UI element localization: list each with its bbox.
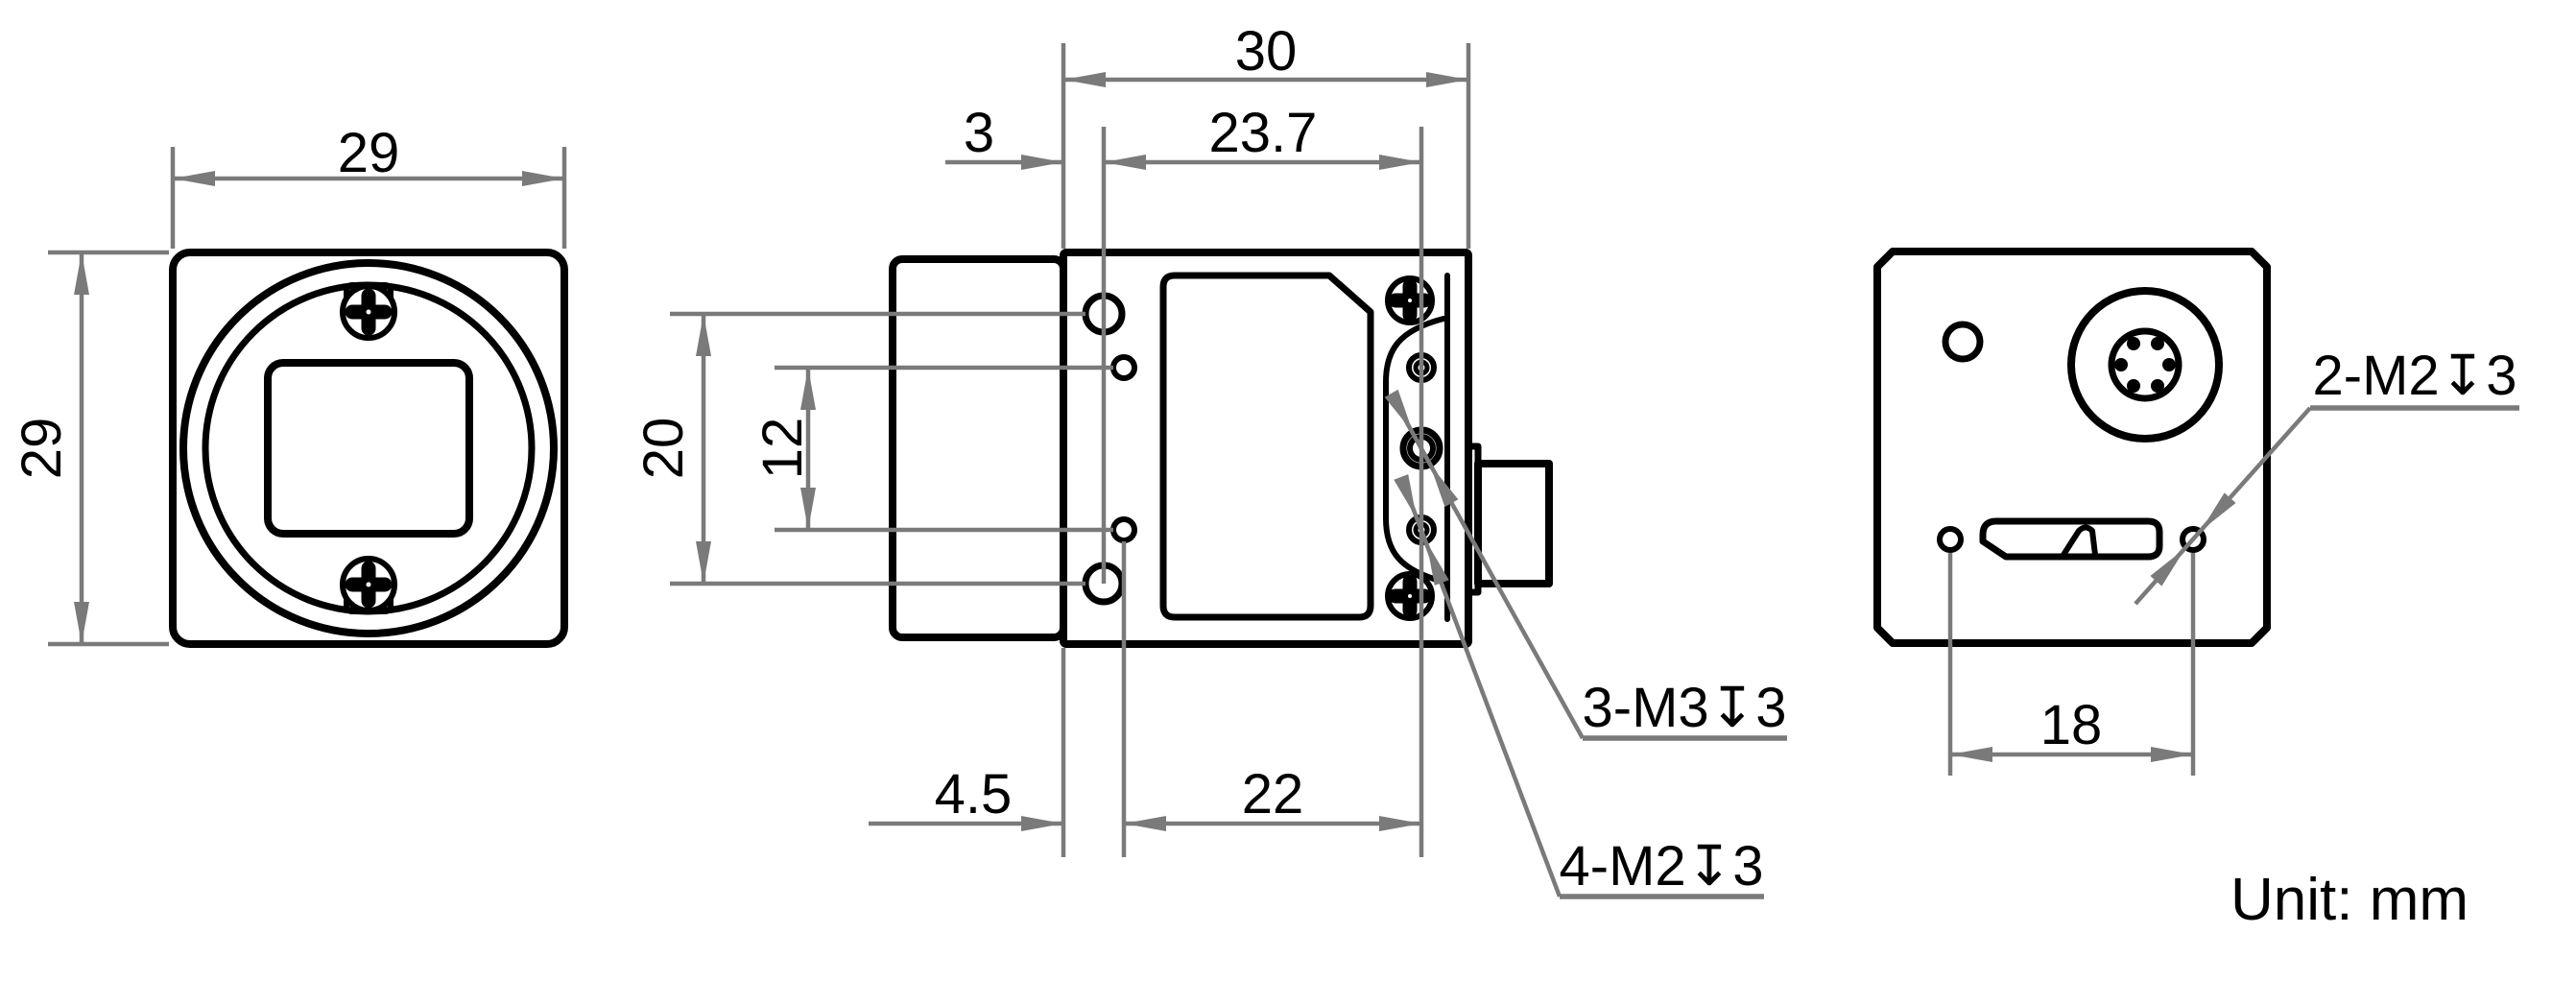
connector-pin (2114, 358, 2128, 371)
arrowhead (800, 368, 816, 410)
drawing-canvas: 29 29 (0, 0, 2576, 981)
phillips-screw-icon-top (343, 286, 394, 338)
dim-text-hole-pitch-inner: 12 (751, 418, 814, 480)
arrowhead (173, 171, 215, 186)
arrowhead (1063, 72, 1106, 87)
arrowhead (696, 541, 711, 584)
arrowhead (2151, 747, 2193, 762)
dim-text-hole-pitch-outer: 20 (632, 418, 695, 480)
power-io-connector (2071, 291, 2219, 439)
dim-text-hole-span: 23.7 (1209, 102, 1318, 164)
dim-text-rear-pitch: 18 (2040, 694, 2103, 756)
arrowhead (74, 252, 89, 295)
arrowhead (1379, 155, 1421, 170)
dim-text-front-width: 29 (338, 122, 400, 184)
connector-pin (2151, 379, 2164, 393)
usb-port (1983, 521, 2159, 557)
unit-note: Unit: mm (2230, 867, 2469, 933)
arrowhead (522, 171, 564, 186)
dim-text-bottom-span: 22 (1242, 763, 1304, 825)
dim-text-depth: 30 (1235, 20, 1298, 83)
dim-bottom-offset: 4.5 (869, 763, 1063, 831)
dim-depth: 30 (1063, 20, 1468, 87)
dim-hole-pitch-inner: 12 (751, 368, 816, 530)
camera-dimension-drawing: 29 29 (0, 0, 2576, 981)
dim-rear-pitch: 18 (1950, 553, 2193, 776)
sensor-window (268, 363, 469, 534)
arrowhead (1021, 155, 1063, 170)
callout-text-m2-side: 4-M2↧3 (1560, 835, 1764, 897)
callout-text-m2-rear: 2-M2↧3 (2313, 345, 2517, 407)
connector-pin (2127, 337, 2140, 350)
usb-latch (2063, 528, 2095, 556)
phillips-screw-icon-bottom (343, 559, 394, 610)
arrowhead (1021, 816, 1063, 831)
phillips-screw-icon-side-top (1388, 278, 1432, 323)
callout-text-m3: 3-M3↧3 (1583, 677, 1787, 739)
arrowhead (1426, 72, 1468, 87)
connector-pin (2162, 358, 2176, 371)
arrowhead (800, 488, 816, 530)
dim-hole-span: 23.7 (1104, 102, 1421, 170)
arrowhead (74, 602, 89, 644)
dim-hole-pitch-outer: 20 (632, 314, 711, 584)
rear-body-outline (1877, 251, 2267, 643)
dim-front-width: 29 (173, 122, 564, 249)
phillips-screw-icon-side-bottom (1388, 574, 1432, 618)
dim-bottom-span: 22 (1124, 763, 1421, 831)
dim-text-front-height: 29 (11, 418, 73, 480)
arrowhead (1379, 816, 1421, 831)
arrowhead (1950, 747, 1992, 762)
dim-text-bottom-offset: 4.5 (935, 763, 1013, 825)
rear-view (1877, 251, 2267, 643)
dim-text-front-offset: 3 (964, 102, 994, 164)
connector-pin (2127, 379, 2140, 393)
front-view (173, 252, 564, 644)
m2-hole-top-left (1113, 357, 1134, 378)
dim-front-height: 29 (11, 252, 169, 644)
dim-front-offset: 3 (945, 102, 1063, 170)
side-panel-outline (1163, 275, 1371, 617)
m2-hole-bottom-left (1113, 519, 1134, 540)
arrowhead (1104, 155, 1146, 170)
connector-pin (2151, 337, 2164, 350)
led-indicator-hole (1945, 324, 1980, 359)
m2-hole-rear-left (1940, 529, 1961, 550)
arrowhead (696, 314, 711, 356)
arrowhead (1124, 816, 1166, 831)
